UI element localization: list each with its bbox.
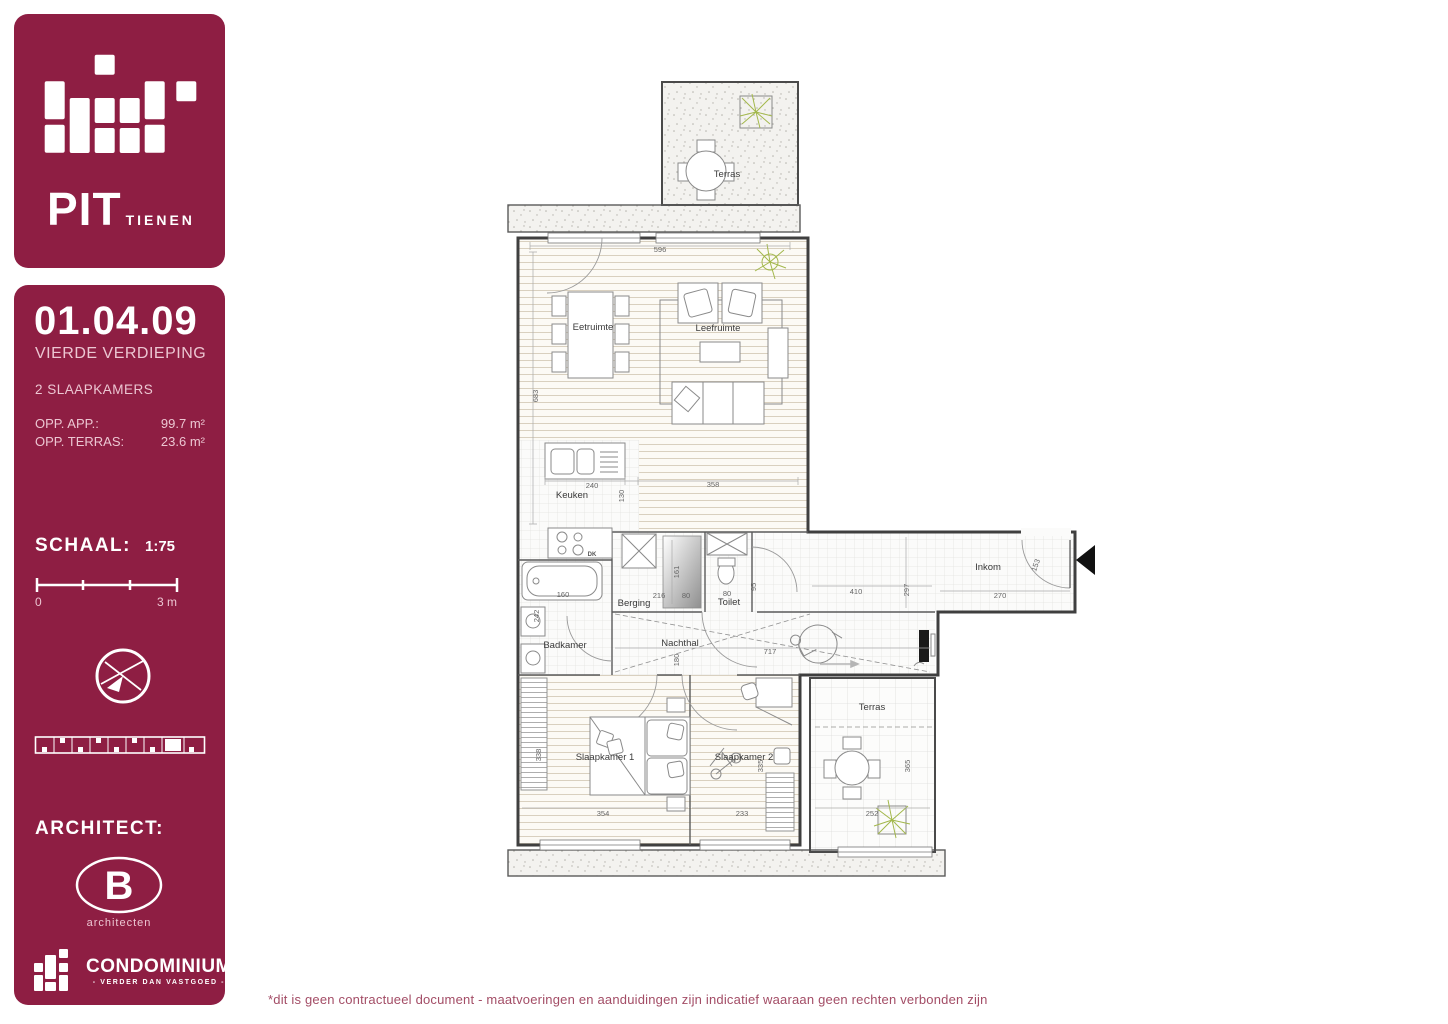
dim-nachthal-w: 717 (764, 647, 777, 656)
architect-logo-name: architecten (74, 917, 164, 929)
scale-value: 1:75 (145, 538, 175, 555)
terrace-top-floor (662, 82, 798, 205)
label-terras-bottom: Terras (859, 702, 886, 713)
architect-logo-letter: B (105, 864, 134, 908)
dim-keuken-h: 130 (617, 490, 626, 503)
window-terrace-bottom (838, 847, 932, 857)
brand-name: PIT (47, 182, 122, 236)
pit-logo-icon (44, 44, 199, 167)
dim-sk2-h: 335 (756, 760, 765, 773)
area-terrace-label: OPP. TERRAS: (35, 434, 124, 449)
window-bottom-2 (700, 840, 790, 850)
scale-row: SCHAAL: 1:75 (35, 535, 175, 557)
area-terrace-value: 23.6 m² (161, 434, 205, 449)
kitchen-hob: DK (548, 528, 612, 558)
developer-name: CONDOMINIUM (86, 956, 232, 978)
dim-terras-w: 252 (866, 809, 879, 818)
scale-label: SCHAAL: (35, 535, 131, 557)
label-inkom: Inkom (975, 562, 1001, 573)
dim-sk2-w: 233 (736, 809, 749, 818)
dim-nachthal-h: 180 (672, 654, 681, 667)
dim-bad-h: 242 (532, 610, 541, 623)
label-slaapkamer1: Slaapkamer 1 (576, 752, 635, 763)
kitchen-counter (545, 443, 625, 479)
brand-name-line: PIT TIENEN (47, 182, 195, 236)
architect-label: ARCHITECT: (35, 818, 164, 840)
area-terrace-row: OPP. TERRAS: 23.6 m² (35, 434, 205, 449)
dim-toilet-door: 95 (749, 583, 758, 591)
dim-sk1-h: 338 (534, 749, 543, 762)
dim-toilet-w: 80 (723, 589, 731, 598)
dim-terras-h: 365 (903, 760, 912, 773)
label-eetruimte: Eetruimte (573, 322, 614, 333)
scale-bar-labels: 0 3 m (35, 595, 177, 609)
dim-inkom-w: 270 (994, 591, 1007, 600)
dim-bad-tub: 160 (557, 590, 570, 599)
wardrobe-bedroom2 (766, 773, 794, 831)
dining-table (552, 292, 629, 378)
area-apartment-value: 99.7 m² (161, 416, 205, 431)
dim-shaft-w: 80 (682, 591, 690, 600)
dim-top-width: 596 (654, 245, 667, 254)
unit-info-card: 01.04.09 VIERDE VERDIEPING 2 SLAAPKAMERS… (14, 285, 225, 1005)
area-apartment-row: OPP. APP.: 99.7 m² (35, 416, 205, 431)
entrance-arrow-icon (1076, 545, 1095, 575)
label-toilet: Toilet (718, 597, 741, 608)
label-leefruimte: Leefruimte (696, 323, 741, 334)
developer-logo: CONDOMINIUM - VERDER DAN VASTGOED - (34, 947, 232, 995)
dim-living-w: 358 (707, 480, 720, 489)
brand-city: TIENEN (126, 212, 195, 228)
dim-berging-w: 216 (653, 591, 666, 600)
toilet-fixture (718, 558, 735, 584)
dim-living-h: 683 (531, 390, 540, 403)
dim-hal-w: 410 (850, 587, 863, 596)
window-top-1 (548, 233, 640, 243)
entrance-gap (1021, 528, 1071, 536)
architect-logo: B architecten (74, 855, 164, 920)
area-apartment-label: OPP. APP.: (35, 416, 99, 431)
developer-tagline: - VERDER DAN VASTGOED - (86, 979, 232, 986)
label-berging: Berging (618, 598, 651, 609)
dim-keuken-w: 240 (586, 481, 599, 490)
label-keuken: Keuken (556, 490, 588, 501)
scale-start: 0 (35, 595, 42, 609)
building-strip-icon (34, 733, 206, 762)
window-top-2 (656, 233, 760, 243)
balcony-strip-top (508, 205, 800, 232)
label-nachthal: Nachthal (661, 638, 699, 649)
unit-floor: VIERDE VERDIEPING (35, 345, 206, 363)
wardrobe-bedroom1 (521, 678, 547, 790)
disclaimer-text: *dit is geen contractueel document - maa… (268, 992, 988, 1007)
unit-code: 01.04.09 (34, 299, 198, 344)
hob-label: DK (588, 552, 597, 558)
dim-shaft-h: 161 (672, 566, 681, 579)
dim-hal-h: 297 (902, 584, 911, 597)
unit-bedrooms: 2 SLAAPKAMERS (35, 382, 153, 397)
window-bottom-1 (540, 840, 640, 850)
compass-icon (92, 645, 154, 712)
scale-end: 3 m (157, 595, 177, 609)
dim-sk1-w: 354 (597, 809, 610, 818)
brand-card: PIT TIENEN (14, 14, 225, 268)
label-badkamer: Badkamer (543, 640, 586, 651)
condominium-blocks-icon (34, 947, 76, 995)
label-terras-top: Terras (714, 169, 741, 180)
